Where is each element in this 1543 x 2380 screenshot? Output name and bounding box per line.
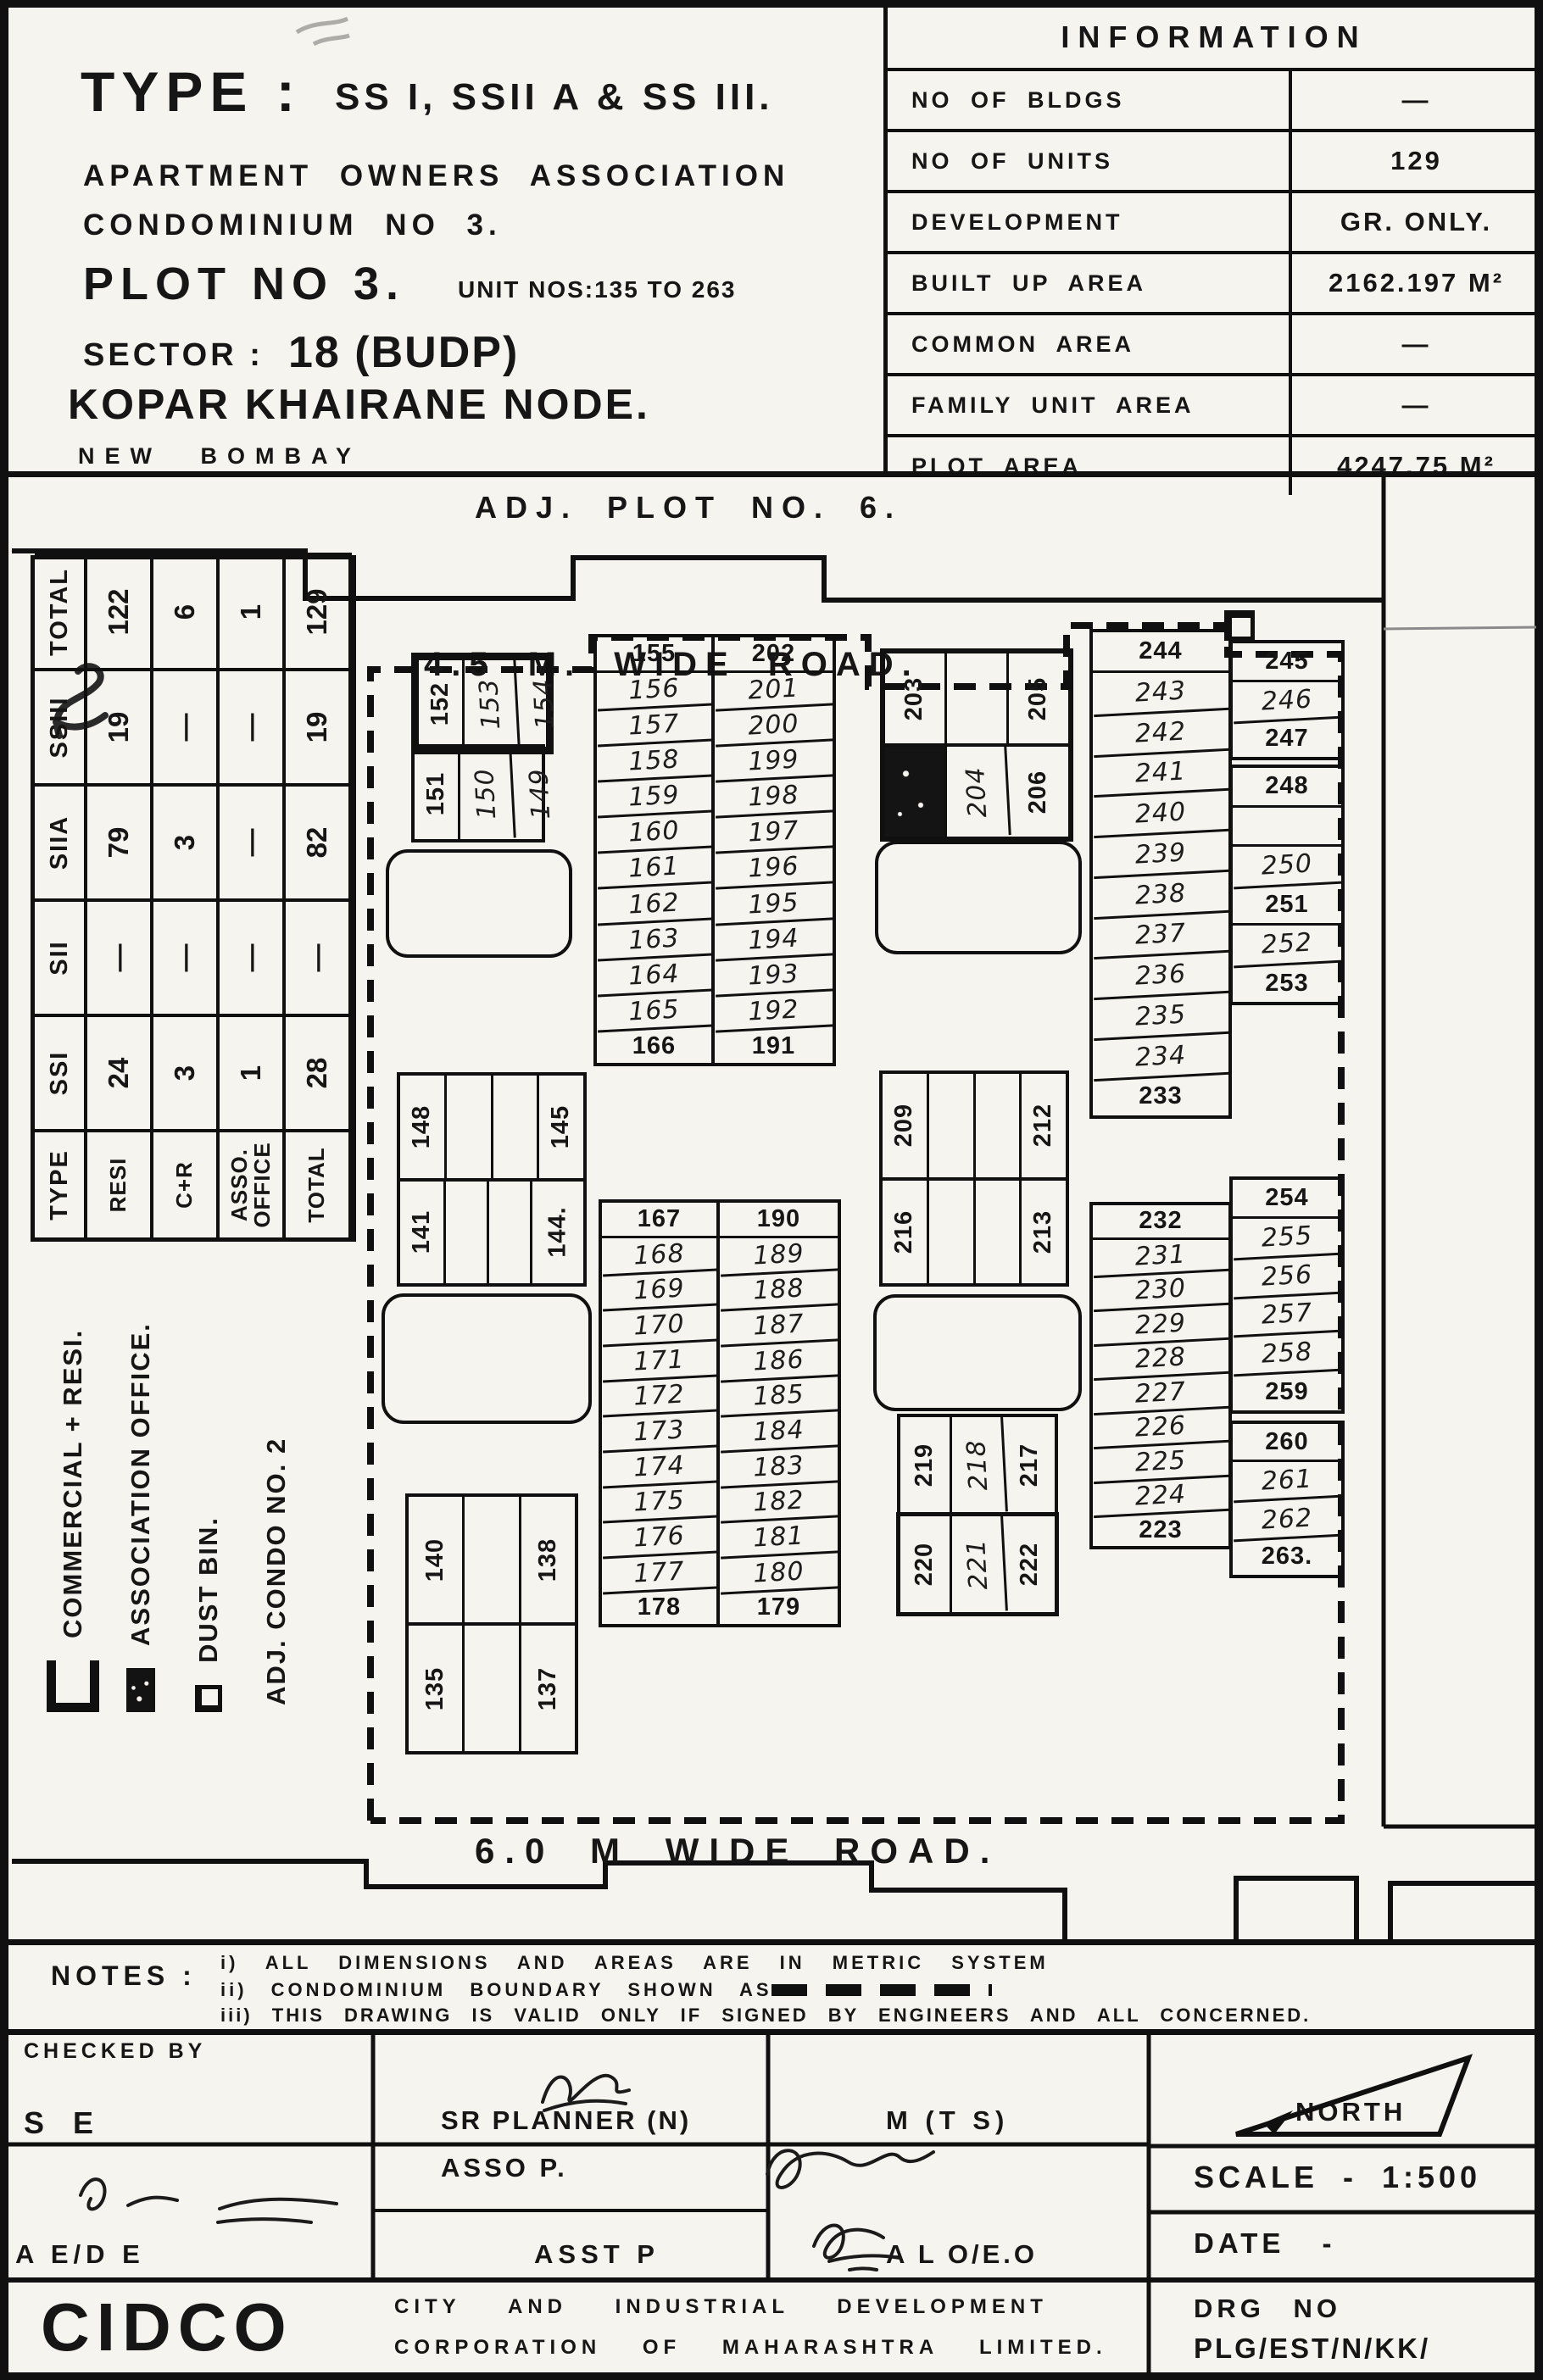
unit-cell: 138	[521, 1497, 575, 1622]
summary-value-cell: 3	[153, 783, 220, 898]
summary-value-cell: 122	[87, 553, 153, 668]
block-135-140: 140138135137	[405, 1493, 578, 1754]
unit-cell: 217	[1005, 1417, 1055, 1513]
unit-cell: 157	[596, 706, 712, 748]
summary-value-cell: 3	[153, 1014, 220, 1129]
dust-bin-marker	[1224, 610, 1255, 641]
summary-value-cell: —	[220, 898, 286, 1014]
unit-cell: 167	[602, 1203, 716, 1238]
unit-cell: 162	[596, 884, 712, 926]
unit-cell: 261	[1232, 1460, 1342, 1504]
unit-cell	[885, 747, 947, 837]
unit-row: 141144.	[400, 1182, 583, 1284]
unit-cell: 154	[516, 659, 572, 748]
legend-item: COMMERCIAL + RESI.	[39, 1225, 107, 1712]
unit-cell: 187	[719, 1305, 838, 1347]
summary-header-cell: TYPE	[35, 1129, 87, 1237]
unit-cell: 234	[1092, 1033, 1229, 1081]
unit-cell: 178	[602, 1591, 716, 1624]
strip-244-233: 244243242241240239238237236235234233	[1089, 629, 1232, 1119]
unit-cell: 241	[1092, 750, 1229, 798]
summary-value-cell: 19	[87, 668, 153, 783]
unit-cell: 251	[1233, 887, 1341, 926]
unit-cell: 204	[944, 745, 1011, 838]
unit-cell: 179	[720, 1591, 838, 1624]
unit-cell: 144.	[532, 1182, 583, 1284]
unit-row: 203205	[885, 653, 1068, 747]
unit-cell: 151	[415, 748, 460, 839]
unit-cell: 150	[459, 746, 517, 840]
unit-cell: 145	[539, 1076, 583, 1178]
unit-cell: 153	[463, 659, 521, 748]
open-space	[873, 1294, 1082, 1411]
unit-cell: 240	[1092, 791, 1229, 838]
unit-cell	[446, 1182, 489, 1284]
unit-row: 152153154	[419, 660, 546, 747]
unit-cell: 213	[1022, 1181, 1066, 1284]
open-space	[875, 841, 1082, 954]
unit-cell: 216	[883, 1181, 929, 1284]
strip-260-263: 260261262263.	[1229, 1421, 1345, 1578]
unit-cell: 220	[900, 1516, 952, 1612]
unit-cell: 250	[1232, 844, 1342, 889]
unit-cell	[1233, 808, 1341, 848]
summary-value-cell: 79	[87, 783, 153, 898]
strip-155-166-202-191: 155156157158159160161162163164165166 202…	[593, 634, 836, 1066]
unit-cell: 223	[1093, 1515, 1228, 1547]
unit-cell: 176	[601, 1518, 717, 1560]
summary-value-cell: 129	[286, 553, 352, 668]
legend-item: ASSOCIATION OFFICE.	[107, 1225, 175, 1712]
summary-table: TYPESSISIISIIASSIIITOTALRESI24—7919122C+…	[31, 555, 356, 1242]
unit-cell: 221	[950, 1515, 1008, 1613]
legend-label: COMMERCIAL + RESI.	[58, 1329, 88, 1638]
unit-cell: 255	[1232, 1216, 1342, 1260]
unit-cell: 166	[597, 1030, 711, 1063]
summary-header-cell: SSIII	[35, 668, 87, 783]
unit-cell: 141	[400, 1182, 446, 1284]
summary-row-label: ASSO. OFFICE	[220, 1129, 286, 1237]
summary-value-cell: 19	[286, 668, 352, 783]
summary-header-cell: SSI	[35, 1014, 87, 1129]
summary-value-cell: 1	[220, 1014, 286, 1129]
unit-cell: 156	[596, 670, 712, 712]
unit-cell	[929, 1074, 976, 1177]
summary-value-cell: 28	[286, 1014, 352, 1129]
unit-cell	[976, 1181, 1022, 1284]
unit-cell: 246	[1232, 679, 1342, 723]
summary-row-label: RESI	[87, 1129, 153, 1237]
unit-cell: 135	[409, 1626, 465, 1751]
unit-cell: 262	[1232, 1498, 1342, 1542]
summary-value-cell: 82	[286, 783, 352, 898]
unit-cell: 253	[1233, 965, 1341, 1003]
summary-value-cell: 6	[153, 553, 220, 668]
unit-cell: 219	[900, 1417, 952, 1513]
unit-cell: 191	[715, 1030, 833, 1063]
unit-cell	[465, 1626, 521, 1751]
legend-label: DUST BIN.	[193, 1516, 224, 1663]
unit-cell: 175	[601, 1482, 717, 1524]
summary-table-area: TYPESSISIISIIASSIIITOTALRESI24—7919122C+…	[31, 555, 351, 1243]
unit-cell: 152	[419, 660, 465, 747]
unit-cell	[489, 1182, 532, 1284]
unit-cell: 258	[1232, 1332, 1342, 1376]
strip-248-253: 248250251252253	[1229, 765, 1345, 1005]
unit-cell: 260	[1233, 1424, 1341, 1462]
legend-label: ASSOCIATION OFFICE.	[125, 1322, 156, 1646]
unit-row: 151150149	[415, 748, 542, 839]
unit-cell: 245	[1233, 643, 1341, 682]
commercial-symbol-icon	[47, 1660, 99, 1712]
unit-cell: 218	[950, 1415, 1008, 1514]
unit-cell: 209	[883, 1074, 929, 1177]
block-145-148-141-144: 148145141144.	[397, 1072, 587, 1287]
unit-cell: 254	[1233, 1180, 1341, 1219]
unit-row: 219218217	[900, 1417, 1055, 1516]
summary-header-cell: SIIA	[35, 783, 87, 898]
unit-row: 220221222	[900, 1516, 1055, 1612]
site-plan-sheet: TYPE : SS I, SSII A & SS III. APARTMENT …	[0, 0, 1543, 2380]
unit-cell: 244	[1093, 632, 1228, 673]
unit-row: 140138	[409, 1497, 575, 1626]
unit-cell: 239	[1092, 831, 1229, 879]
unit-cell: 170	[601, 1306, 717, 1348]
block-152-154: 152153154	[411, 653, 554, 754]
unit-cell: 193	[714, 955, 833, 997]
unit-cell: 164	[596, 955, 712, 997]
summary-value-cell: —	[286, 898, 352, 1014]
unit-cell: 192	[714, 991, 833, 1032]
unit-cell: 180	[719, 1553, 838, 1594]
unit-cell: 237	[1092, 912, 1229, 959]
unit-cell: 173	[601, 1412, 717, 1454]
summary-row-label: C+R	[153, 1129, 220, 1237]
unit-cell: 263.	[1233, 1539, 1341, 1575]
unit-cell: 169	[601, 1271, 717, 1312]
unit-cell	[493, 1076, 540, 1178]
unit-cell: 224	[1092, 1476, 1229, 1518]
unit-cell: 155	[597, 637, 711, 673]
strip-232-223: 232231230229228227226225224223	[1089, 1202, 1232, 1549]
unit-cell	[465, 1497, 521, 1622]
block-217-222: 219218217220221222	[897, 1414, 1058, 1615]
strip-245-247: 245246247	[1229, 640, 1345, 760]
unit-cell: 165	[596, 991, 712, 1032]
legend-area: COMMERCIAL + RESI.ASSOCIATION OFFICE.DUS…	[39, 1225, 310, 1712]
unit-cell	[447, 1076, 493, 1178]
summary-value-cell: 24	[87, 1014, 153, 1129]
legend-item: DUST BIN.	[175, 1225, 242, 1712]
unit-cell: 206	[1009, 747, 1068, 837]
unit-cell: 161	[596, 848, 712, 890]
unit-row: 216213	[883, 1181, 1066, 1284]
summary-value-cell: —	[220, 783, 286, 898]
unit-cell: 236	[1092, 953, 1229, 1000]
unit-cell: 222	[1005, 1516, 1055, 1612]
unit-cell: 137	[521, 1626, 575, 1751]
dustbin-symbol-icon	[195, 1685, 222, 1712]
legend: COMMERCIAL + RESI.ASSOCIATION OFFICE.DUS…	[39, 1225, 310, 1712]
unit-cell: 203	[885, 653, 947, 743]
road-bottom-label: 6.0 M WIDE ROAD.	[475, 1831, 1000, 1871]
unit-cell	[976, 1074, 1022, 1177]
unit-cell: 195	[714, 884, 833, 926]
unit-cell: 235	[1092, 993, 1229, 1041]
unit-cell: 190	[720, 1203, 838, 1238]
unit-cell: 194	[714, 920, 833, 961]
unit-cell: 233	[1093, 1077, 1228, 1115]
unit-cell: 181	[719, 1517, 838, 1559]
block-151-149: 151150149	[411, 744, 545, 842]
legend-item: ADJ. CONDO NO. 2	[242, 1225, 310, 1712]
summary-value-cell: —	[87, 898, 153, 1014]
unit-cell: 247	[1233, 720, 1341, 757]
unit-cell	[947, 653, 1009, 743]
summary-header-cell: SII	[35, 898, 87, 1014]
strip-254-259: 254255256257258259	[1229, 1176, 1345, 1414]
association-symbol-icon	[126, 1668, 155, 1712]
unit-row: 204206	[885, 747, 1068, 837]
unit-cell: 196	[714, 848, 833, 890]
adj-plot-label: ADJ. PLOT NO. 6.	[475, 490, 902, 525]
unit-cell: 163	[596, 920, 712, 961]
strip-167-178-190-179: 167168169170171172173174175176177178 190…	[599, 1199, 841, 1627]
summary-value-cell: —	[220, 668, 286, 783]
unit-cell: 172	[601, 1376, 717, 1418]
unit-cell: 188	[719, 1271, 838, 1312]
unit-cell: 256	[1232, 1254, 1342, 1298]
unit-cell	[929, 1181, 976, 1284]
unit-cell: 252	[1232, 923, 1342, 968]
unit-cell: 149	[512, 746, 568, 840]
unit-cell: 140	[409, 1497, 465, 1622]
unit-cell: 184	[719, 1411, 838, 1453]
unit-cell: 205	[1009, 653, 1068, 743]
unit-row: 209212	[883, 1074, 1066, 1181]
open-space	[386, 849, 572, 958]
open-space	[382, 1293, 592, 1424]
unit-cell: 212	[1022, 1074, 1066, 1177]
unit-cell: 148	[400, 1076, 447, 1178]
summary-value-cell: 1	[220, 553, 286, 668]
unit-cell: 243	[1092, 670, 1229, 717]
unit-row: 148145	[400, 1076, 583, 1182]
block-209-216: 209212216213	[879, 1070, 1069, 1287]
unit-cell: 257	[1232, 1293, 1342, 1337]
unit-cell: 202	[715, 637, 833, 673]
unit-cell: 248	[1233, 768, 1341, 808]
unit-cell: 232	[1093, 1205, 1228, 1240]
unit-cell: 182	[719, 1482, 838, 1524]
block-203-206: 203205204206	[880, 648, 1073, 842]
unit-cell: 185	[719, 1376, 838, 1418]
summary-row-label: TOTAL	[286, 1129, 352, 1237]
summary-value-cell: —	[153, 898, 220, 1014]
unit-cell: 259	[1233, 1374, 1341, 1410]
summary-value-cell: —	[153, 668, 220, 783]
unit-cell: 177	[601, 1553, 717, 1594]
summary-header-cell: TOTAL	[35, 553, 87, 668]
legend-label: ADJ. CONDO NO. 2	[261, 1437, 292, 1705]
unit-row: 135137	[409, 1626, 575, 1751]
